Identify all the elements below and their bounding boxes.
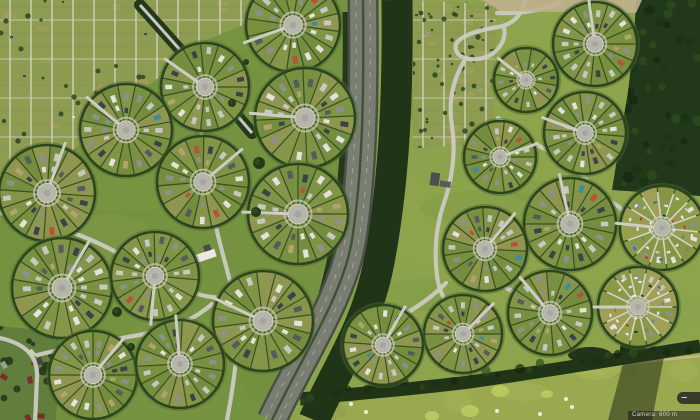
garden-circle — [542, 90, 628, 176]
attribution-bar: Camera: 600 m — [628, 411, 700, 420]
garden-circle — [506, 269, 594, 357]
garden-circle — [551, 0, 639, 88]
garden-circle — [109, 230, 201, 324]
garden-circle — [422, 293, 504, 375]
garden-circle — [341, 303, 425, 387]
map-canvas — [0, 0, 700, 420]
zoom-out-button[interactable]: − — [681, 393, 687, 403]
garden-circle — [462, 119, 538, 195]
garden-circle — [155, 134, 251, 230]
zoom-control: − + — [677, 392, 700, 404]
satellite-map[interactable]: − + Camera: 600 m — [0, 0, 700, 420]
garden-circle — [492, 46, 560, 114]
garden-circle — [594, 265, 680, 349]
garden-circle — [0, 143, 97, 243]
garden-circle — [10, 236, 114, 340]
garden-circle — [134, 316, 226, 410]
garden-circle — [47, 329, 139, 420]
garden-circle — [441, 205, 529, 293]
garden-circle — [522, 175, 618, 273]
